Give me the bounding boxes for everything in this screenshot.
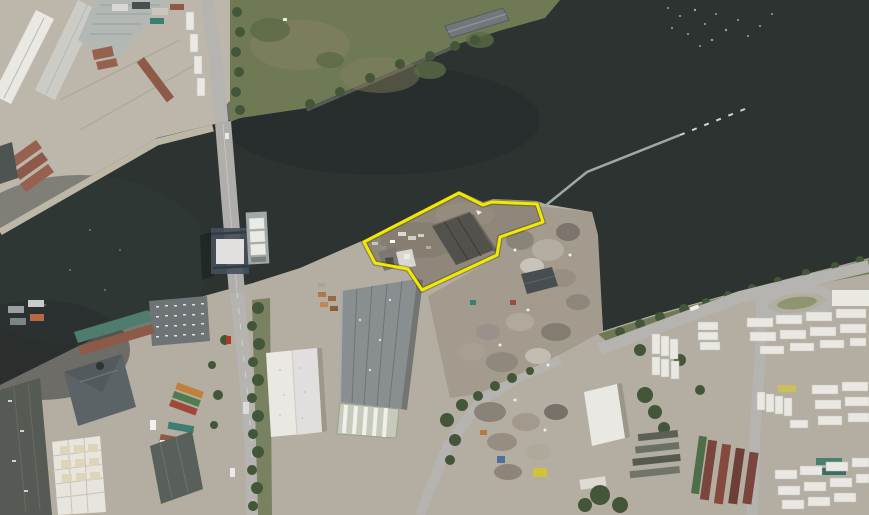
aerial-photo bbox=[0, 0, 869, 515]
white-van bbox=[150, 420, 156, 430]
lock-gates bbox=[246, 211, 270, 264]
vehicle-on-bridge bbox=[225, 133, 229, 139]
yellow-trailer bbox=[778, 385, 796, 392]
warehouse-right-edge bbox=[832, 290, 869, 306]
white-grid-building bbox=[52, 436, 106, 515]
white-truck bbox=[243, 402, 249, 414]
red-car bbox=[226, 336, 231, 344]
striped-grey-building bbox=[149, 296, 210, 346]
white-car bbox=[230, 468, 235, 477]
lift-bridge-platform bbox=[216, 239, 244, 264]
small-object bbox=[283, 18, 287, 21]
trailer-cluster-b bbox=[698, 322, 720, 350]
